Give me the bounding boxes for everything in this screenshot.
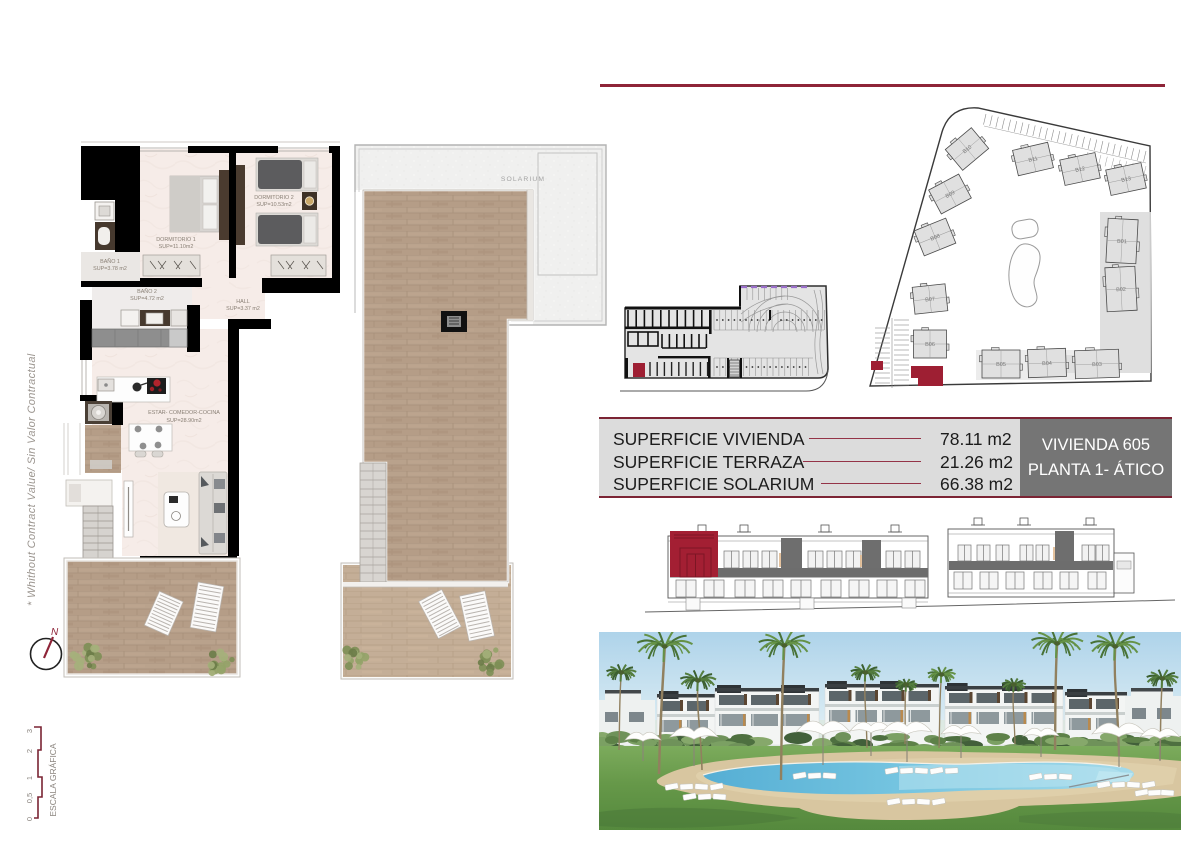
- svg-text:SUP=3.37 m2: SUP=3.37 m2: [226, 306, 260, 312]
- svg-text:B01: B01: [1117, 239, 1127, 246]
- svg-text:SUP=10.53m2: SUP=10.53m2: [256, 202, 291, 208]
- svg-text:1: 1: [25, 776, 34, 780]
- svg-text:B05: B05: [996, 362, 1006, 368]
- svg-text:HALL: HALL: [236, 299, 250, 305]
- svg-text:SUP=3.78 m2: SUP=3.78 m2: [93, 266, 127, 272]
- svg-text:0,5: 0,5: [25, 793, 34, 803]
- svg-text:3: 3: [25, 729, 34, 733]
- svg-text:ESTAR- COMEDOR-COCINA: ESTAR- COMEDOR-COCINA: [148, 410, 220, 416]
- svg-text:ESCALA GRÁFICA: ESCALA GRÁFICA: [48, 743, 58, 817]
- svg-text:B03: B03: [1092, 362, 1102, 368]
- svg-text:SOLARIUM: SOLARIUM: [501, 176, 545, 183]
- svg-text:B04: B04: [1042, 361, 1052, 367]
- svg-text:B06: B06: [925, 342, 935, 348]
- svg-text:BAÑO 2: BAÑO 2: [137, 288, 157, 295]
- svg-text:BAÑO 1: BAÑO 1: [100, 258, 120, 265]
- svg-text:B07: B07: [925, 296, 935, 303]
- svg-text:DORMITORIO 2: DORMITORIO 2: [254, 195, 293, 201]
- svg-text:0: 0: [25, 817, 34, 821]
- svg-text:SUP=28.90m2: SUP=28.90m2: [166, 418, 201, 424]
- svg-text:SUP=11.10m2: SUP=11.10m2: [159, 244, 194, 250]
- svg-text:DORMITORIO 1: DORMITORIO 1: [156, 237, 195, 243]
- svg-text:2: 2: [25, 749, 34, 753]
- svg-text:SUP=4.72 m2: SUP=4.72 m2: [130, 296, 164, 302]
- svg-text:B02: B02: [1116, 287, 1126, 294]
